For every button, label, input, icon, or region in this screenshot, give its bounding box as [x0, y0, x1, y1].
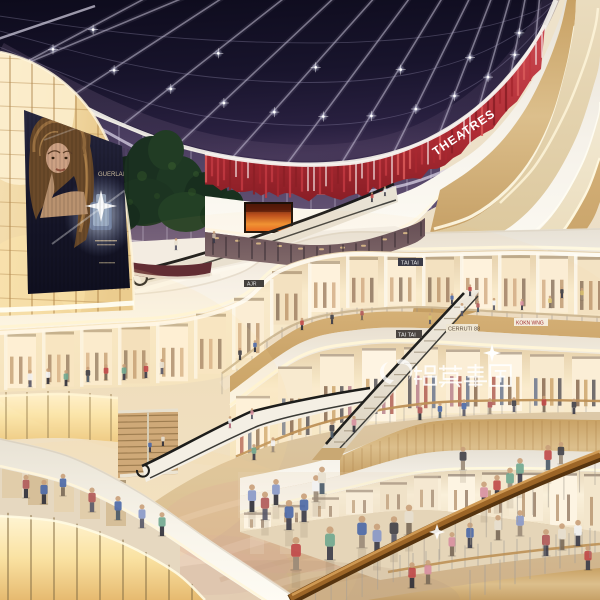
svg-text:TAI TAI: TAI TAI: [398, 333, 416, 339]
svg-text:KOKN WNG: KOKN WNG: [516, 321, 544, 327]
svg-text:AJR: AJR: [247, 282, 257, 288]
svg-text:CERRUTI 88: CERRUTI 88: [448, 327, 480, 333]
svg-text:TAI TAI: TAI TAI: [401, 261, 419, 267]
